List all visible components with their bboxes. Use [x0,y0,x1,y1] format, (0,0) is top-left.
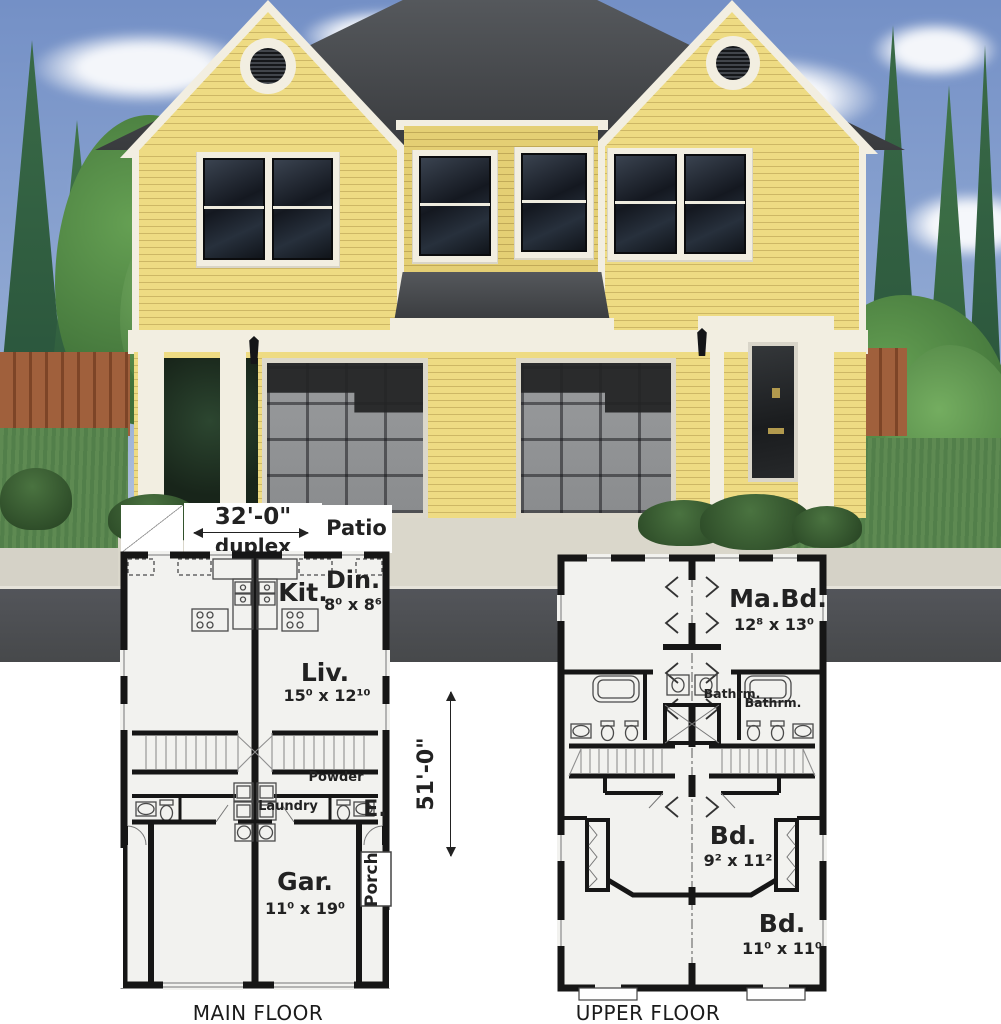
garage-door-shadow [267,363,423,413]
room-label-powder: Powder [305,771,367,784]
center-bay-roof [394,272,610,322]
window-pane [272,158,334,260]
room-label-laundry: Laundry [258,800,318,813]
round-gable-vent-icon [706,36,760,90]
room-label-living: Liv. [289,660,361,685]
portico-column [798,344,834,512]
round-gable-vent-icon [240,38,296,94]
cloud [870,20,1000,80]
garage-door-shadow [521,363,671,413]
room-label-bedroom-2: Bd. [705,823,761,848]
center-window [515,147,593,258]
door-handle [768,428,784,434]
center-bay-fascia [390,318,614,330]
room-dims-bedroom-2: 9² x 11² [694,853,782,869]
room-dims-living: 15⁰ x 12¹⁰ [281,688,373,704]
portico-column [710,344,724,512]
depth-dimension-arrow [450,692,451,856]
room-label-entry: E. [362,799,388,821]
upper-window-left-pair [197,152,339,266]
door-knocker [772,388,780,398]
upper-floor-caption: UPPER FLOOR [558,1001,738,1024]
room-dims-bedroom-3: 11⁰ x 11⁰ [738,941,826,957]
upper-window-right-pair [608,148,752,260]
shrub [0,468,72,530]
room-label-bathroom-2: Bathrm. [741,697,805,710]
window-pane [419,156,491,256]
main-floor-caption: MAIN FLOOR [168,1001,348,1024]
room-label-garage: Gar. [269,869,341,894]
window-pane [203,158,265,260]
garage-door-left [262,358,428,518]
depth-dimension: 51'-0" [416,729,438,819]
front-door [748,342,798,482]
porch-column [138,348,164,518]
room-label-master-bedroom: Ma.Bd. [728,586,828,611]
porch-column [220,348,246,518]
room-label-kitchen: Kit. [274,580,332,605]
window-pane [684,154,747,254]
room-dims-master-bedroom: 12⁸ x 13⁰ [726,617,822,633]
center-window-bay [413,150,497,262]
garage-door-right [516,358,676,518]
portico-beam [698,316,834,344]
window-pane [521,153,587,252]
corner-board [132,150,139,352]
fence-left [0,352,130,436]
room-label-porch: Porch [364,852,381,908]
window-pane [614,154,677,254]
corner-board [859,146,866,352]
house-plan-sheet: 32'-0" duplex Patio [0,0,1001,1024]
room-dims-garage: 11⁰ x 19⁰ [261,901,349,917]
room-label-bedroom-3: Bd. [754,911,810,936]
